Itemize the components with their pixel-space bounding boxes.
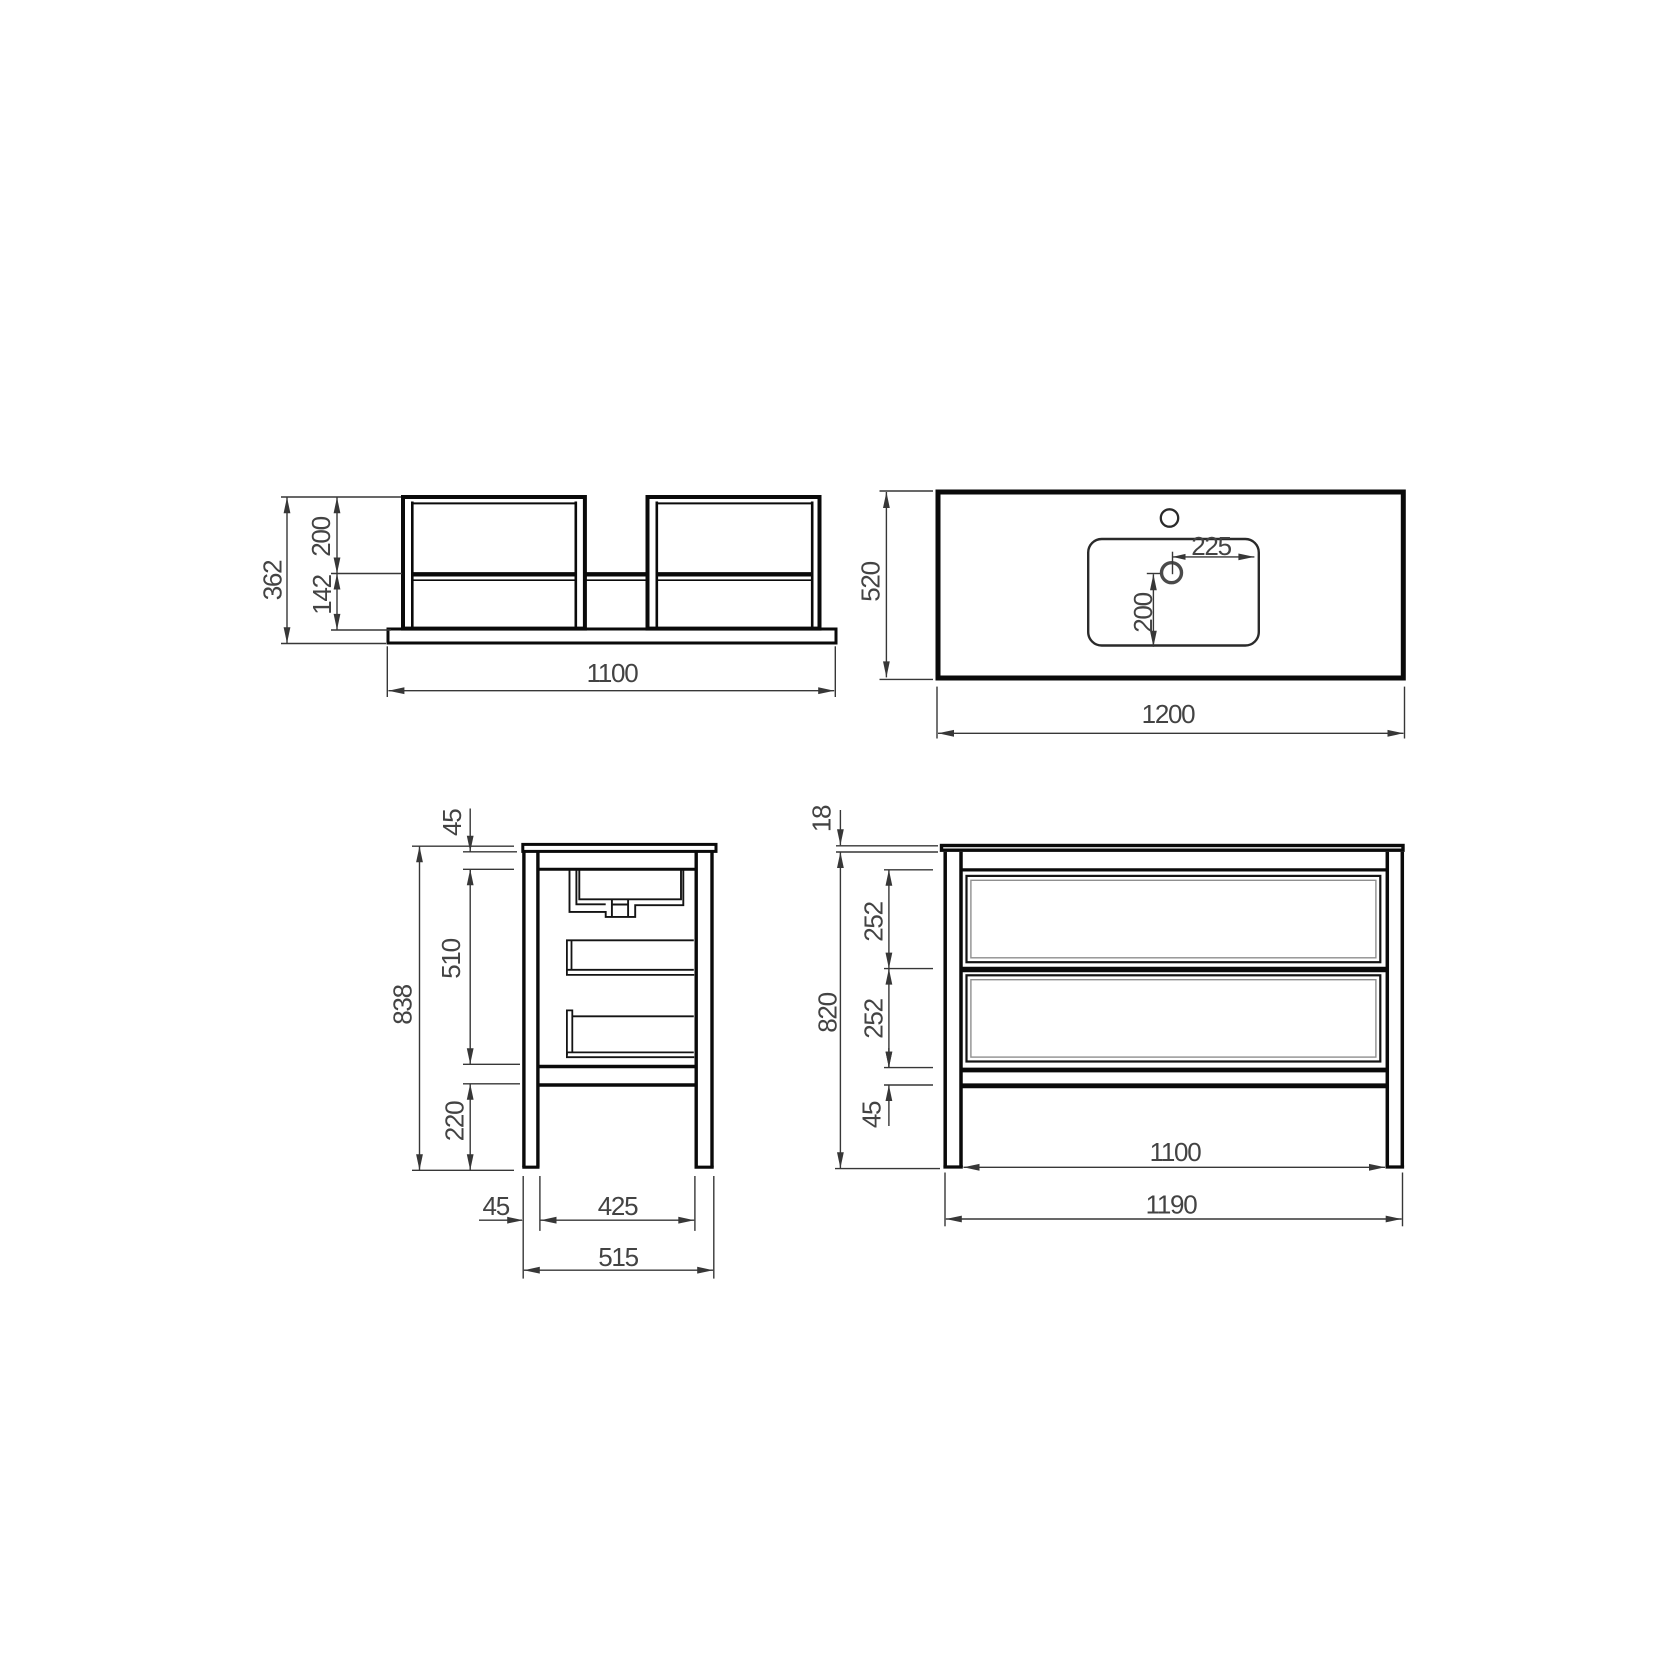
svg-text:520: 520 — [856, 561, 886, 601]
svg-text:362: 362 — [258, 560, 288, 600]
svg-text:200: 200 — [1128, 592, 1158, 632]
svg-text:18: 18 — [807, 805, 837, 832]
svg-text:220: 220 — [440, 1101, 470, 1141]
svg-text:1200: 1200 — [1142, 699, 1195, 729]
svg-text:200: 200 — [306, 516, 336, 556]
svg-text:1100: 1100 — [587, 658, 639, 688]
svg-text:142: 142 — [307, 574, 337, 614]
svg-text:510: 510 — [436, 938, 466, 978]
svg-text:838: 838 — [388, 984, 418, 1024]
svg-text:252: 252 — [859, 901, 889, 941]
svg-text:45: 45 — [857, 1101, 887, 1128]
svg-text:45: 45 — [483, 1191, 510, 1221]
svg-text:1100: 1100 — [1150, 1137, 1202, 1167]
svg-text:252: 252 — [859, 998, 889, 1038]
svg-text:1190: 1190 — [1146, 1190, 1198, 1220]
svg-text:225: 225 — [1191, 531, 1231, 561]
svg-text:425: 425 — [598, 1191, 638, 1221]
svg-text:820: 820 — [813, 992, 843, 1032]
svg-text:45: 45 — [437, 809, 467, 836]
svg-text:515: 515 — [598, 1242, 638, 1272]
